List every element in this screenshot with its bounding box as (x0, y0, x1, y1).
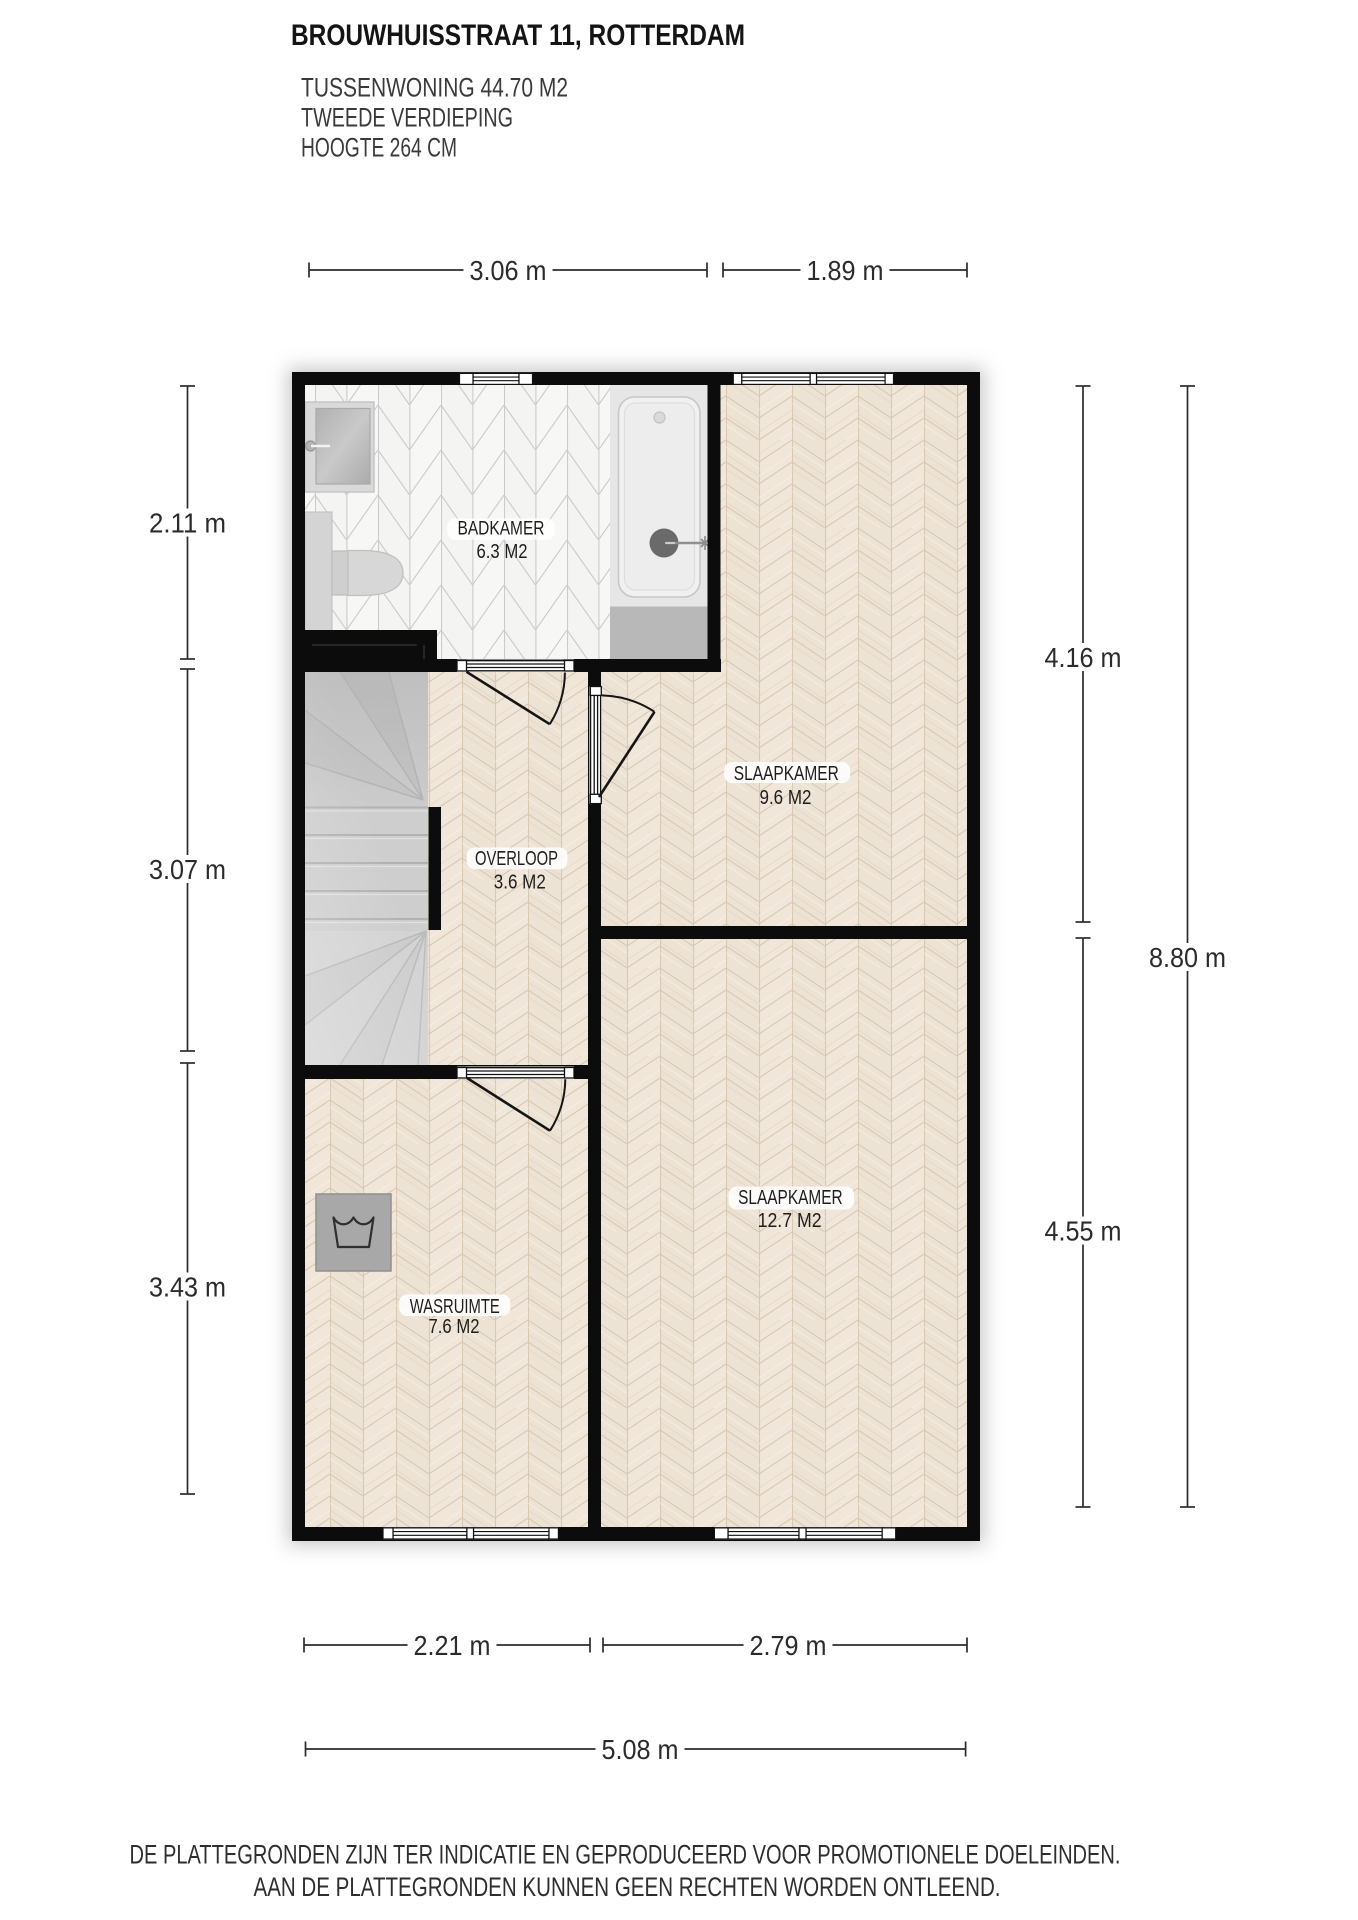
svg-text:4.55 m: 4.55 m (1045, 1216, 1122, 1247)
svg-text:6.3 M2: 6.3 M2 (477, 541, 528, 563)
svg-text:TWEEDE VERDIEPING: TWEEDE VERDIEPING (301, 103, 513, 133)
svg-text:SLAAPKAMER: SLAAPKAMER (734, 763, 839, 785)
svg-text:BADKAMER: BADKAMER (458, 518, 545, 540)
svg-text:AAN DE PLATTEGRONDEN KUNNEN GE: AAN DE PLATTEGRONDEN KUNNEN GEEN RECHTEN… (254, 1872, 1001, 1902)
svg-text:3.6 M2: 3.6 M2 (494, 871, 546, 893)
svg-text:3.43 m: 3.43 m (149, 1272, 226, 1303)
svg-text:3.06 m: 3.06 m (470, 255, 547, 286)
svg-text:12.7 M2: 12.7 M2 (758, 1210, 822, 1232)
svg-text:1.89 m: 1.89 m (807, 255, 884, 286)
svg-text:3.07 m: 3.07 m (149, 854, 226, 885)
svg-text:2.21 m: 2.21 m (414, 1630, 491, 1661)
svg-text:5.08 m: 5.08 m (602, 1734, 679, 1765)
svg-text:7.6 M2: 7.6 M2 (429, 1316, 480, 1338)
svg-text:9.6 M2: 9.6 M2 (760, 787, 812, 809)
svg-text:8.80 m: 8.80 m (1149, 942, 1226, 973)
svg-text:HOOGTE 264 CM: HOOGTE 264 CM (301, 133, 457, 163)
svg-text:TUSSENWONING 44.70 M2: TUSSENWONING 44.70 M2 (301, 73, 568, 103)
svg-text:DE PLATTEGRONDEN ZIJN TER INDI: DE PLATTEGRONDEN ZIJN TER INDICATIE EN G… (130, 1839, 1121, 1869)
svg-text:OVERLOOP: OVERLOOP (475, 848, 558, 870)
svg-text:4.16 m: 4.16 m (1045, 642, 1122, 673)
svg-text:2.11 m: 2.11 m (149, 508, 226, 539)
svg-text:BROUWHUISSTRAAT 11, ROTTERDAM: BROUWHUISSTRAAT 11, ROTTERDAM (291, 19, 745, 52)
svg-text:2.79 m: 2.79 m (750, 1630, 827, 1661)
svg-text:SLAAPKAMER: SLAAPKAMER (738, 1187, 843, 1209)
svg-text:WASRUIMTE: WASRUIMTE (410, 1296, 500, 1318)
